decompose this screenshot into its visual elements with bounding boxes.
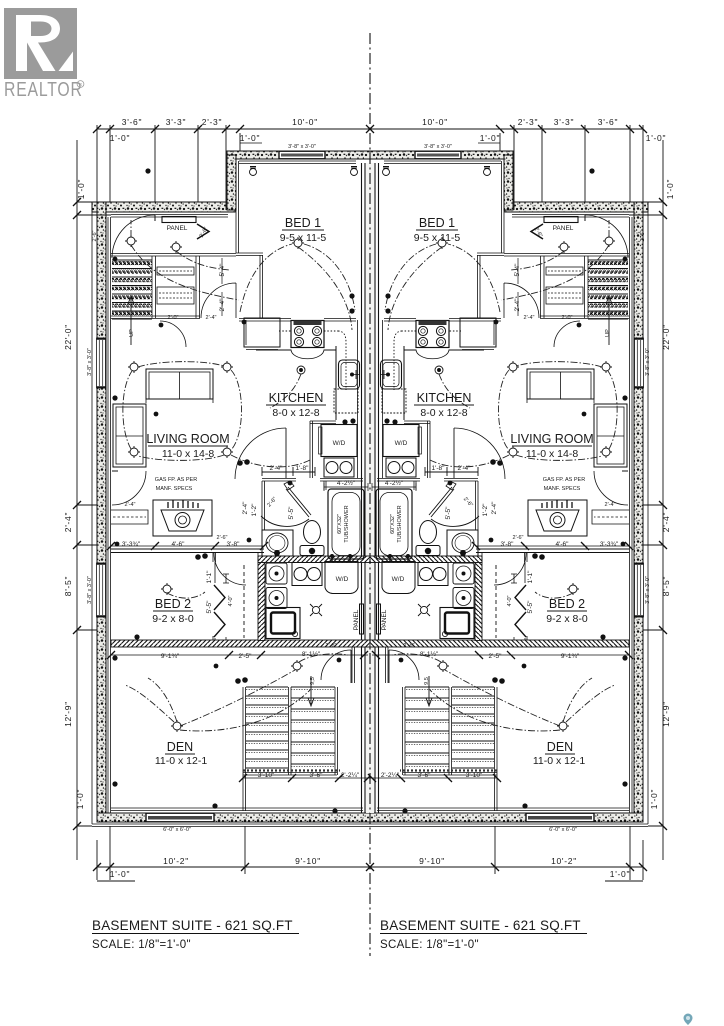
svg-text:3'-8" x 3'-0": 3'-8" x 3'-0" (424, 144, 452, 150)
svg-text:5'-5": 5'-5" (206, 600, 213, 614)
svg-text:3'-8" x 3'-0": 3'-8" x 3'-0" (87, 348, 93, 376)
svg-text:1'-0": 1'-0" (240, 133, 260, 143)
svg-text:KITCHEN: KITCHEN (417, 391, 472, 405)
svg-text:LIVING ROOM: LIVING ROOM (146, 432, 229, 446)
svg-text:8'-1½": 8'-1½" (302, 650, 321, 658)
svg-text:2'-4": 2'-4" (242, 501, 249, 515)
svg-text:60"X32": 60"X32" (337, 514, 343, 534)
svg-text:1'-1": 1'-1" (206, 570, 213, 584)
svg-text:3'-6": 3'-6" (598, 117, 618, 127)
svg-text:BED 2: BED 2 (549, 597, 585, 611)
svg-text:LIVING ROOM: LIVING ROOM (510, 432, 593, 446)
svg-text:2'-3": 2'-3" (518, 117, 538, 127)
svg-text:1'-0": 1'-0" (610, 869, 630, 879)
svg-text:BED 1: BED 1 (285, 216, 321, 230)
svg-text:10'-0": 10'-0" (292, 117, 318, 127)
svg-text:1'-2": 1'-2" (482, 503, 489, 517)
svg-text:PANEL: PANEL (167, 225, 188, 232)
svg-text:2'-4": 2'-4" (491, 501, 498, 515)
svg-text:8-0 x 12-8: 8-0 x 12-8 (272, 407, 319, 419)
svg-text:1'-0": 1'-0" (665, 179, 675, 199)
svg-text:2'-4": 2'-4" (458, 465, 472, 472)
svg-text:W/D: W/D (333, 440, 346, 447)
svg-text:W/D: W/D (395, 440, 408, 447)
svg-text:3'-8" x 3'-0": 3'-8" x 3'-0" (288, 144, 316, 150)
svg-text:12'-9": 12'-9" (63, 701, 73, 727)
svg-text:4'-0": 4'-0" (507, 595, 513, 606)
svg-text:BASEMENT SUITE - 621 SQ.FT: BASEMENT SUITE - 621 SQ.FT (380, 918, 581, 933)
svg-text:8'-1½": 8'-1½" (420, 650, 439, 658)
svg-text:9'-1¾": 9'-1¾" (161, 653, 180, 660)
svg-text:1'-0": 1'-0" (110, 133, 130, 143)
svg-text:9-5 x 11-5: 9-5 x 11-5 (280, 232, 327, 244)
svg-text:2'-4": 2'-4" (206, 315, 217, 321)
svg-text:11-0 x 14-8: 11-0 x 14-8 (526, 448, 578, 460)
svg-text:2'-8": 2'-8" (404, 643, 415, 649)
svg-text:BASEMENT SUITE - 621 SQ.FT: BASEMENT SUITE - 621 SQ.FT (92, 918, 293, 933)
svg-text:BED 2: BED 2 (155, 597, 191, 611)
svg-text:SCALE: 1/8"=1'-0": SCALE: 1/8"=1'-0" (92, 939, 191, 951)
svg-text:5'-4": 5'-4" (219, 263, 226, 277)
svg-text:6'-0" x 6'-0": 6'-0" x 6'-0" (549, 827, 577, 833)
svg-text:3'-8" x 3'-0": 3'-8" x 3'-0" (645, 348, 651, 376)
svg-text:3'-6": 3'-6" (418, 772, 432, 779)
svg-text:R: R (79, 82, 82, 87)
svg-text:GAS FP. AS PER: GAS FP. AS PER (155, 477, 197, 483)
svg-text:2'-6": 2'-6" (513, 535, 524, 541)
svg-text:1'-8": 1'-8" (296, 465, 310, 472)
svg-text:8'-5": 8'-5" (63, 576, 73, 596)
svg-text:5'-5": 5'-5" (445, 506, 452, 520)
svg-text:9'-1¾": 9'-1¾" (561, 653, 580, 660)
svg-text:4'-0": 4'-0" (228, 595, 234, 606)
svg-text:BED 1: BED 1 (419, 216, 455, 230)
svg-text:5'-5": 5'-5" (288, 506, 295, 520)
svg-text:SCALE: 1/8"=1'-0": SCALE: 1/8"=1'-0" (380, 939, 479, 951)
svg-text:PANEL: PANEL (381, 609, 388, 630)
svg-text:5'-5": 5'-5" (527, 600, 534, 614)
svg-text:1'-2": 1'-2" (251, 503, 258, 517)
svg-text:11-0 x 12-1: 11-0 x 12-1 (155, 755, 207, 767)
svg-text:1'-0": 1'-0" (646, 133, 666, 143)
svg-text:3'-6": 3'-6" (310, 772, 324, 779)
svg-text:1'-0": 1'-0" (76, 179, 86, 199)
svg-text:3'-10": 3'-10" (258, 772, 275, 779)
svg-text:10'-2": 10'-2" (551, 856, 577, 866)
svg-text:W/D: W/D (392, 576, 405, 583)
svg-text:9-2 x 8-0: 9-2 x 8-0 (546, 613, 588, 625)
svg-text:3'-6": 3'-6" (122, 117, 142, 127)
svg-text:3'-3¾": 3'-3¾" (122, 541, 141, 548)
svg-text:2'-2¼": 2'-2¼" (341, 772, 360, 779)
svg-text:TUB/SHOWER: TUB/SHOWER (397, 505, 403, 542)
svg-text:1'-0": 1'-0" (110, 869, 130, 879)
svg-text:GAS FP. AS PER: GAS FP. AS PER (543, 477, 585, 483)
svg-text:2'-6": 2'-6" (640, 230, 646, 241)
svg-text:22'-0": 22'-0" (661, 324, 671, 350)
svg-text:2'-2¼": 2'-2¼" (381, 772, 400, 779)
svg-text:4'-2½": 4'-2½" (385, 479, 404, 487)
svg-text:3'-3¾": 3'-3¾" (600, 541, 619, 548)
svg-text:DEN: DEN (547, 740, 573, 754)
svg-text:2'-4": 2'-4" (63, 512, 73, 532)
svg-text:UP: UP (129, 329, 135, 337)
svg-text:9-2 x 8-0: 9-2 x 8-0 (152, 613, 194, 625)
svg-text:3'-8" x 3'-0": 3'-8" x 3'-0" (87, 576, 93, 604)
svg-text:REALTOR: REALTOR (4, 78, 83, 100)
svg-text:MANF. SPECS: MANF. SPECS (544, 486, 581, 492)
svg-text:1'-8": 1'-8" (432, 465, 446, 472)
svg-text:1'-0": 1'-0" (480, 133, 500, 143)
svg-text:1'-0": 1'-0" (649, 789, 659, 809)
svg-text:6'-0" x 6'-0": 6'-0" x 6'-0" (163, 827, 191, 833)
svg-text:11-0 x 14-8: 11-0 x 14-8 (162, 448, 214, 460)
svg-text:1'-0": 1'-0" (75, 789, 85, 809)
svg-text:PANEL: PANEL (553, 225, 574, 232)
svg-text:10'-2": 10'-2" (163, 856, 189, 866)
svg-text:8-0 x 12-8: 8-0 x 12-8 (420, 407, 467, 419)
svg-text:2'-4": 2'-4" (661, 512, 671, 532)
svg-text:12'-9": 12'-9" (661, 701, 671, 727)
svg-text:8'-5": 8'-5" (661, 576, 671, 596)
svg-text:W/D: W/D (336, 576, 349, 583)
svg-text:2'-4": 2'-4" (524, 315, 535, 321)
svg-text:60"X32": 60"X32" (390, 514, 396, 534)
svg-text:4'-6": 4'-6" (556, 541, 570, 548)
svg-text:3'-8" x 3'-0": 3'-8" x 3'-0" (645, 576, 651, 604)
svg-text:4'-6": 4'-6" (172, 541, 186, 548)
svg-text:9'-10": 9'-10" (419, 856, 445, 866)
svg-text:3'-10": 3'-10" (466, 772, 483, 779)
svg-text:9'-10": 9'-10" (295, 856, 321, 866)
svg-text:2'-0": 2'-0" (562, 315, 573, 321)
svg-text:22'-0": 22'-0" (63, 324, 73, 350)
svg-text:4'-2½": 4'-2½" (337, 479, 356, 487)
svg-text:MANF. SPECS: MANF. SPECS (156, 486, 193, 492)
svg-text:3'-3": 3'-3" (166, 117, 186, 127)
svg-text:2'-5": 2'-5" (489, 653, 503, 660)
svg-text:DEN: DEN (167, 740, 193, 754)
svg-text:2'-0": 2'-0" (168, 315, 179, 321)
svg-text:UP: UP (605, 329, 611, 337)
svg-text:3'-8": 3'-8" (501, 541, 515, 548)
svg-text:TUB/SHOWER: TUB/SHOWER (344, 505, 350, 542)
svg-text:9,5: 9,5 (310, 677, 316, 685)
svg-text:2'-4": 2'-4" (605, 502, 616, 508)
svg-text:10'-0": 10'-0" (422, 117, 448, 127)
svg-text:2'-4": 2'-4" (125, 502, 136, 508)
svg-text:11-0 x 12-1: 11-0 x 12-1 (533, 755, 585, 767)
svg-text:9-5 x 11-5: 9-5 x 11-5 (414, 232, 461, 244)
svg-text:1'-1": 1'-1" (527, 570, 534, 584)
svg-text:2'-5": 2'-5" (239, 653, 253, 660)
svg-text:2'-6": 2'-6" (92, 230, 98, 241)
svg-text:2'-3": 2'-3" (202, 117, 222, 127)
svg-text:2'-8": 2'-8" (326, 643, 337, 649)
svg-text:3'-3": 3'-3" (554, 117, 574, 127)
svg-text:2'-4": 2'-4" (270, 465, 284, 472)
svg-text:2'-4": 2'-4" (219, 298, 226, 312)
svg-text:PANEL: PANEL (353, 609, 360, 630)
svg-text:5'-4": 5'-4" (514, 263, 521, 277)
svg-text:9,5: 9,5 (424, 677, 430, 685)
svg-text:2'-4": 2'-4" (514, 298, 521, 312)
svg-text:KITCHEN: KITCHEN (269, 391, 324, 405)
svg-text:3'-8": 3'-8" (227, 541, 241, 548)
